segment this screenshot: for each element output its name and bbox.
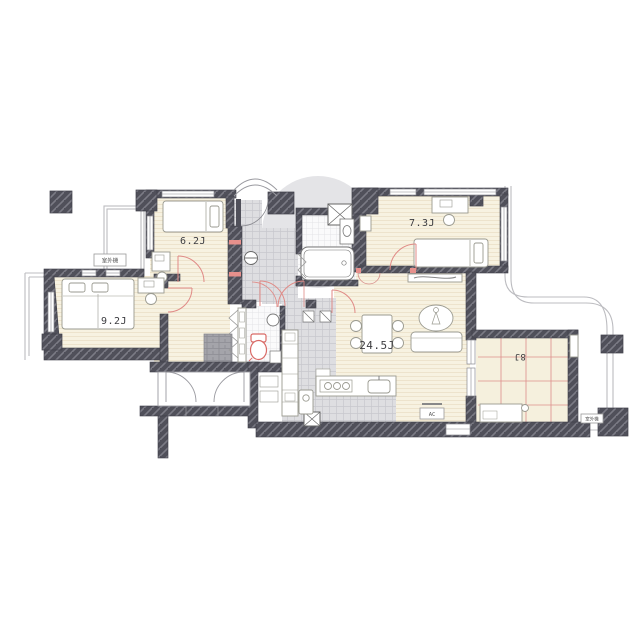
bath-counter	[340, 219, 354, 244]
label-ldk: 24.5J	[359, 339, 395, 352]
washroom-cabinet	[282, 330, 298, 416]
bed-single-62	[163, 201, 223, 232]
tv-board	[408, 274, 462, 282]
window-73-east	[501, 207, 507, 261]
shelf-73	[360, 216, 371, 231]
column-62-corner	[136, 190, 157, 211]
column-entrance	[268, 192, 294, 214]
floor-plan-drawing: AC 室外機 室外機 6.2J 7.3J 9.2J 24.5J 8J	[0, 0, 640, 640]
toilet-cabinet	[270, 351, 281, 363]
label-bedroom-6-2: 6.2J	[180, 236, 206, 247]
window-73-north-2	[424, 189, 496, 195]
bathtub	[301, 247, 354, 280]
column-right-rail-upper	[601, 335, 623, 353]
window-ldk-east-2	[467, 368, 475, 396]
label-japanese-room: 8J	[514, 351, 526, 361]
window-62-west	[147, 216, 153, 250]
column-bath	[352, 188, 378, 214]
window-92-north-2	[106, 270, 120, 276]
washing-machine	[299, 390, 313, 414]
column-nw-free	[50, 191, 72, 213]
floor-entrance-tile2	[262, 228, 298, 304]
column-left-balcony	[42, 334, 62, 350]
outdoor-unit-right: 室外機	[581, 414, 603, 423]
bed-single-73	[414, 239, 488, 267]
window-92-north-1	[82, 270, 96, 276]
japanese-room-label-strip	[570, 335, 578, 357]
outdoor-unit-left-label: 室外機	[102, 257, 119, 265]
outdoor-unit-left: 室外機	[94, 254, 126, 266]
window-ldk-east-1	[467, 340, 475, 364]
window-92-west	[48, 292, 54, 332]
floor-plan-page: AC 室外機 室外機 6.2J 7.3J 9.2J 24.5J 8J	[0, 0, 640, 640]
entrance-door-leaf	[236, 199, 241, 227]
japanese-room-closet	[480, 404, 529, 422]
outdoor-unit-right-label: 室外機	[585, 416, 599, 423]
ac-label: AC	[429, 412, 436, 418]
label-bedroom-7-3: 7.3J	[409, 218, 435, 229]
window-ldk-south	[446, 424, 470, 435]
window-62-north	[162, 191, 214, 197]
label-bedroom-9-2: 9.2J	[101, 316, 127, 327]
floor-genkan	[204, 334, 232, 364]
window-73-north-1	[390, 189, 416, 195]
